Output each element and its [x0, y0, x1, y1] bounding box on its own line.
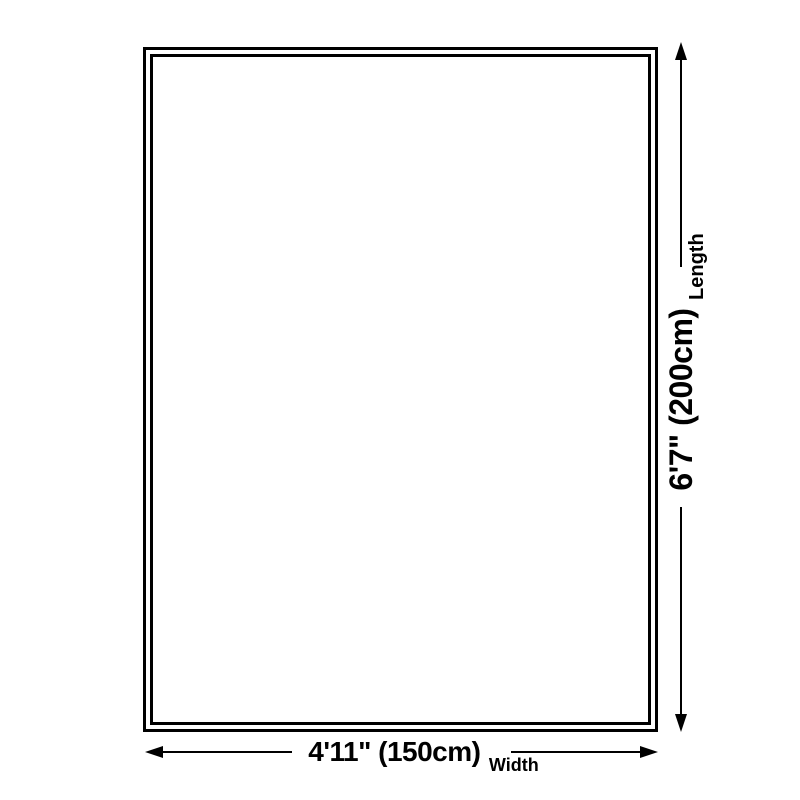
- width-dimension-label: 4'11" (150cm) Width: [292, 738, 511, 766]
- length-dimension-line-upper: [680, 60, 683, 267]
- length-dimension-label: 6'7" (200cm) Length: [665, 267, 697, 506]
- left-arrowhead-icon: [145, 746, 163, 758]
- width-dimension-line-right: [511, 751, 640, 754]
- right-arrowhead-icon: [640, 746, 658, 758]
- length-value: 6'7" (200cm): [663, 308, 699, 490]
- length-axis-label: Length: [687, 233, 707, 300]
- length-dimension-line-lower: [680, 507, 683, 714]
- width-value: 4'11" (150cm): [308, 736, 480, 767]
- length-dimension-indicator: 6'7" (200cm) Length: [657, 42, 705, 732]
- width-dimension-indicator: 4'11" (150cm) Width: [145, 732, 658, 772]
- width-axis-label: Width: [489, 756, 539, 774]
- down-arrowhead-icon: [675, 714, 687, 732]
- product-outline-inner-border: [150, 54, 651, 725]
- up-arrowhead-icon: [675, 42, 687, 60]
- width-dimension-line-left: [163, 751, 292, 754]
- size-diagram: 6'7" (200cm) Length 4'11" (150cm) Width: [0, 0, 800, 800]
- product-outline-outer-border: [143, 47, 658, 732]
